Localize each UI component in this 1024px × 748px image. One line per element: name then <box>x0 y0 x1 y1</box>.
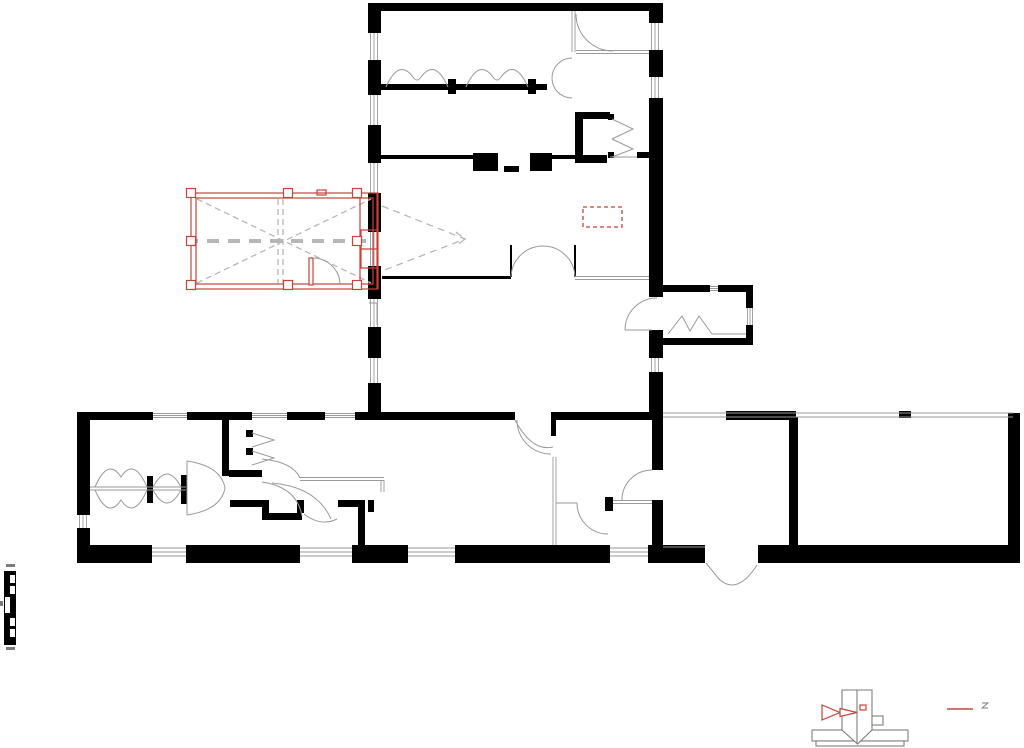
annex-door-jamb <box>309 258 313 285</box>
annex-door-swing <box>313 258 340 285</box>
east-vestibule <box>625 285 753 345</box>
legend-marks <box>947 703 988 709</box>
north-wing-window-glazing-lines <box>369 11 659 383</box>
view-cone-dashed <box>382 206 465 271</box>
south-wing-window-glazing-lines <box>80 414 653 557</box>
scale-bar-top-label-mark <box>6 564 15 567</box>
detail-red-arrow-head <box>822 705 840 720</box>
closet-bifold-doors <box>612 119 633 157</box>
legend-tiny-glyph <box>982 703 988 708</box>
south-wing-wall-segments <box>77 412 1020 563</box>
annex-room-red-highlight <box>186 189 378 290</box>
south-wing-plan <box>77 412 1020 585</box>
vestibule-wall-segments <box>663 285 753 345</box>
plinth-detail-figure <box>812 690 908 746</box>
detail-side-tab <box>872 716 883 725</box>
scale-bar-mid-label-mark <box>0 601 3 606</box>
red-dashed-marker-box <box>583 207 622 227</box>
extension-thin-walls <box>663 413 1013 547</box>
vestibule-door-swing <box>625 298 657 330</box>
vestibule-bifold-doors <box>668 316 712 334</box>
east-garage-extension <box>663 411 1020 563</box>
scale-bar-bottom-label-mark <box>6 647 15 650</box>
extension-wall-segments <box>726 411 1020 563</box>
annex-outer-wall-red <box>191 193 378 289</box>
graphic-scale-bar <box>0 564 16 650</box>
floor-plan-canvas <box>0 0 1024 748</box>
floor-plan-drawing <box>0 0 1024 748</box>
